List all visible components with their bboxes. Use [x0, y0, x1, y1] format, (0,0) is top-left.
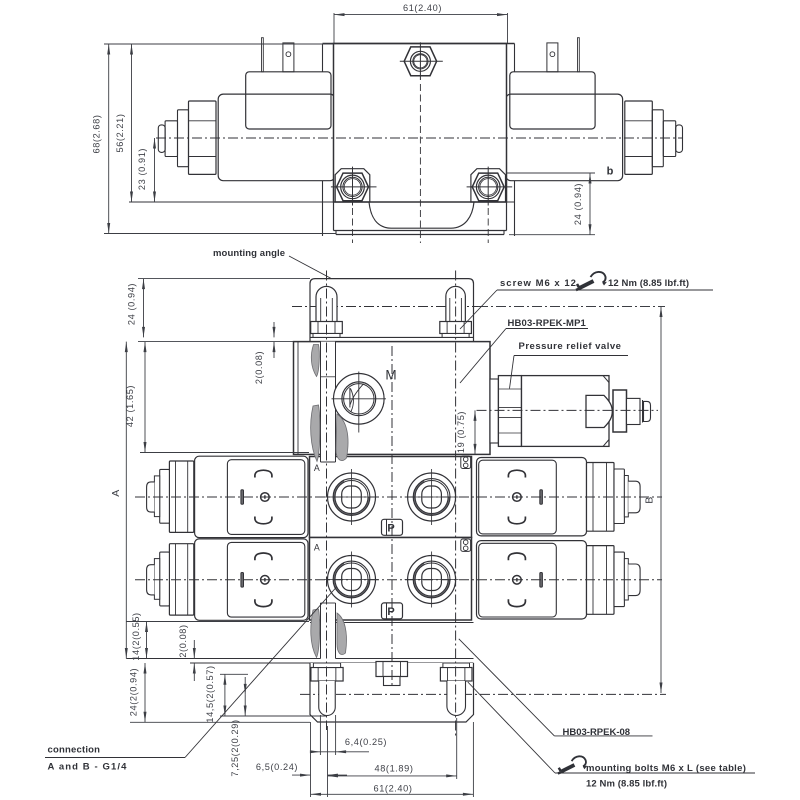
svg-text:Pressure relief valve: Pressure relief valve [519, 341, 622, 352]
svg-text:M: M [385, 368, 396, 383]
svg-text:connection: connection [48, 745, 101, 756]
svg-text:A: A [314, 543, 320, 553]
svg-text:P: P [387, 606, 394, 618]
svg-text:24(2(0.94): 24(2(0.94) [129, 668, 139, 716]
svg-text:48(1.89): 48(1.89) [374, 764, 413, 774]
svg-text:68(2.68): 68(2.68) [92, 114, 102, 153]
svg-text:6,5(0.24): 6,5(0.24) [256, 762, 298, 772]
svg-text:A: A [110, 489, 122, 497]
svg-text:P: P [387, 523, 394, 535]
svg-text:12 Nm (8.85 lbf.ft): 12 Nm (8.85 lbf.ft) [586, 779, 667, 790]
svg-text:24 (0.94): 24 (0.94) [573, 183, 583, 225]
svg-text:6,4(0.25): 6,4(0.25) [345, 737, 387, 747]
svg-text:12 Nm (8.85 lbf.ft): 12 Nm (8.85 lbf.ft) [608, 278, 689, 289]
svg-text:mounting bolts M6 x L (see tab: mounting bolts M6 x L (see table) [586, 763, 746, 774]
svg-text:A: A [314, 463, 320, 473]
svg-text:2(0.08): 2(0.08) [178, 624, 188, 657]
svg-text:24 (0.94): 24 (0.94) [127, 283, 137, 325]
svg-text:B: B [644, 496, 656, 504]
svg-text:HB03-RPEK-MP1: HB03-RPEK-MP1 [508, 318, 587, 329]
svg-text:61(2.40): 61(2.40) [403, 3, 442, 13]
svg-text:61(2.40): 61(2.40) [373, 784, 412, 794]
svg-text:14(2(0.55): 14(2(0.55) [131, 612, 141, 660]
svg-text:23 (0.91): 23 (0.91) [137, 148, 147, 190]
svg-text:A and B - G1/4: A and B - G1/4 [48, 762, 128, 773]
svg-text:14,5(2(0.57): 14,5(2(0.57) [205, 665, 215, 722]
svg-text:b: b [607, 166, 614, 178]
svg-text:56(2.21): 56(2.21) [115, 113, 125, 152]
svg-text:mounting angle: mounting angle [213, 248, 285, 259]
svg-text:7,25(2(0.29): 7,25(2(0.29) [230, 719, 240, 776]
svg-text:screw M6 x 12: screw M6 x 12 [500, 278, 577, 289]
svg-text:2(0.08): 2(0.08) [254, 351, 264, 384]
svg-text:19 (0.75): 19 (0.75) [456, 411, 466, 453]
